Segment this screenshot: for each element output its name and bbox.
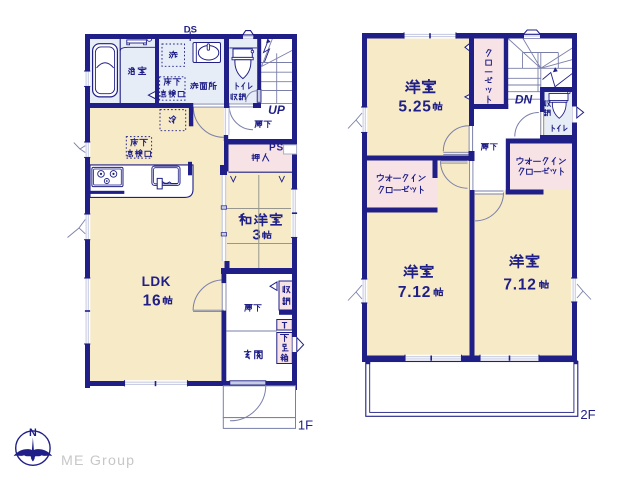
svg-text:1F: 1F (298, 418, 313, 433)
svg-text:7.12: 7.12 (503, 277, 536, 294)
svg-text:DN: DN (515, 93, 533, 107)
svg-text:T: T (282, 320, 288, 330)
svg-text:16: 16 (143, 292, 162, 309)
svg-text:LDK: LDK (142, 274, 171, 289)
svg-text:2F: 2F (580, 407, 595, 422)
svg-text:N: N (29, 427, 37, 439)
svg-text:7.12: 7.12 (398, 284, 431, 301)
svg-text:5.25: 5.25 (398, 99, 431, 116)
svg-text:UP: UP (268, 103, 286, 117)
svg-text:3: 3 (252, 227, 260, 244)
svg-text:ME Group: ME Group (61, 453, 135, 469)
